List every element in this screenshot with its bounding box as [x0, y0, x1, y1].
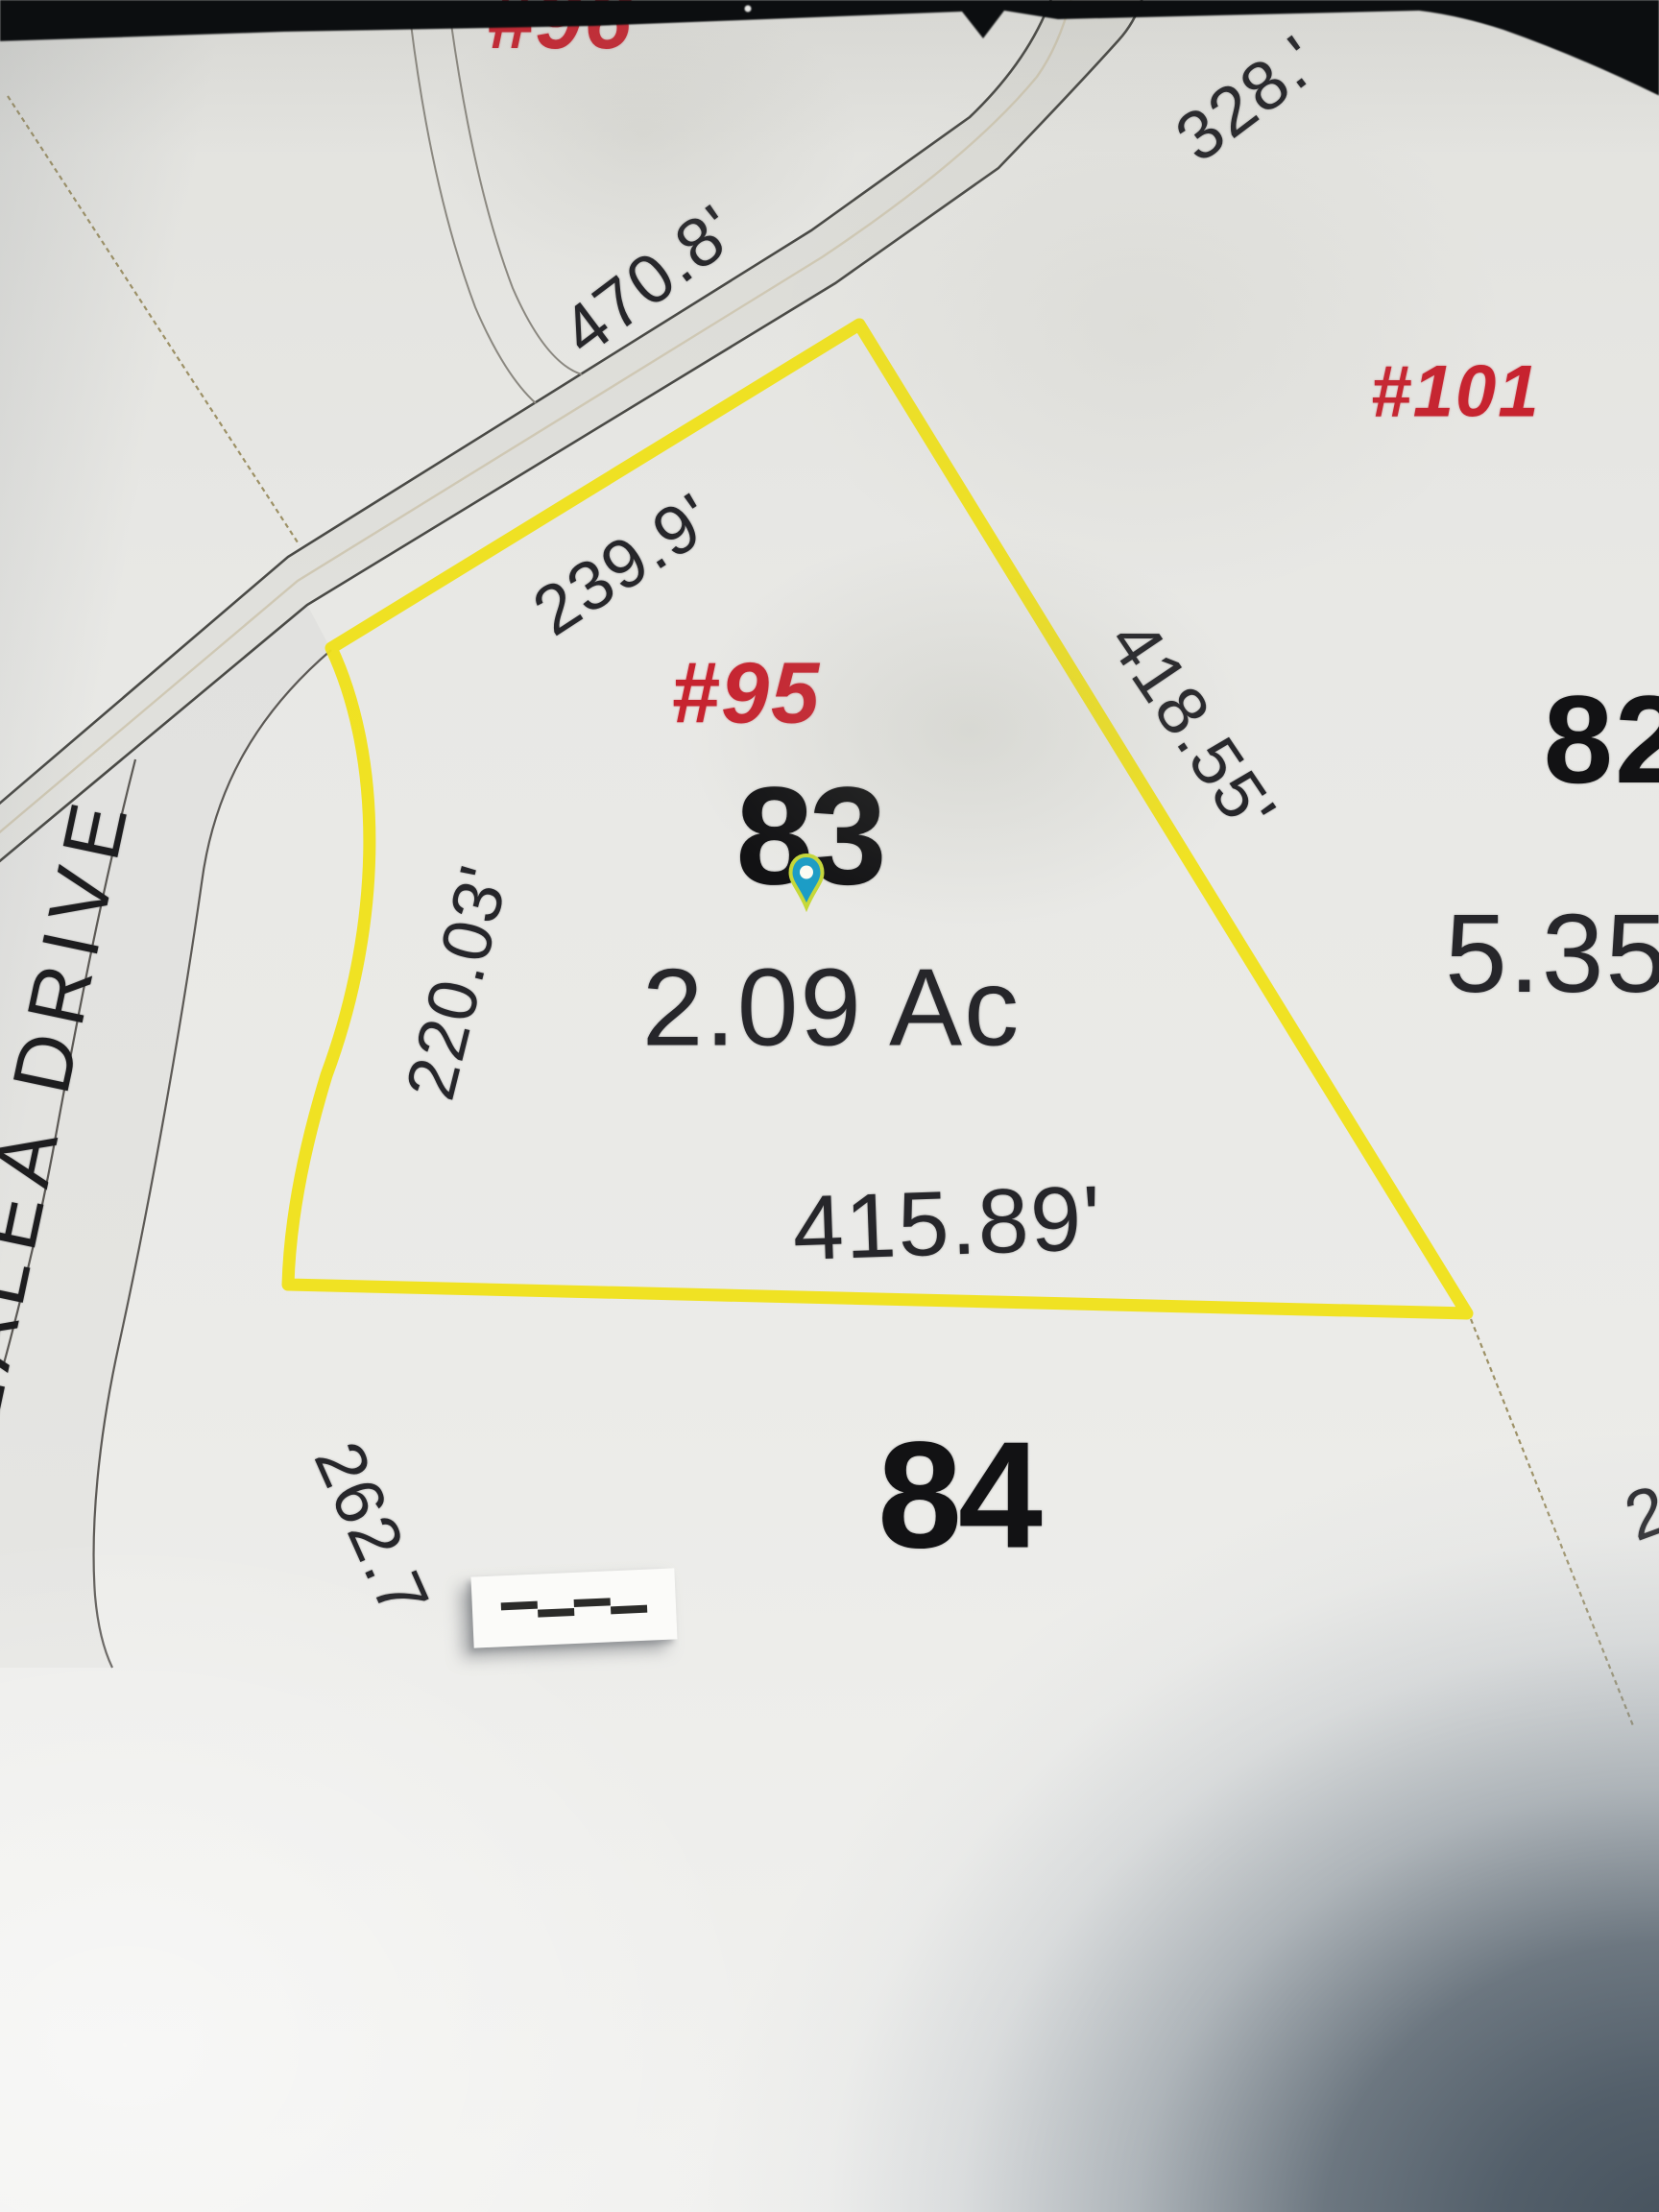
lot-area-209: 2.09 Ac — [642, 946, 1021, 1071]
parcel-line-southeast — [1471, 1319, 1634, 1728]
lot-dimension-south: 415.89' — [791, 1166, 1104, 1282]
scale-bar-segment — [501, 1601, 538, 1611]
upper-street-west-edge — [411, 24, 536, 403]
parcel-line-northwest — [8, 96, 300, 545]
lot-number-82: 82 — [1544, 667, 1659, 811]
plat-linework — [0, 0, 1659, 2212]
site-number-101: #101 — [1370, 350, 1540, 434]
site-number-95: #95 — [671, 645, 821, 744]
scale-bar — [470, 1568, 677, 1647]
scale-bar-segment — [538, 1608, 574, 1618]
lot-area-535: 5.35 — [1445, 889, 1659, 1018]
map-pin-icon[interactable] — [787, 853, 826, 912]
lot-number-84: 84 — [878, 1409, 1039, 1583]
scale-bar-segment — [574, 1598, 611, 1607]
plat-map-photo: 470.8' 328.' #96 #101 239.9' #95 83 2.09… — [0, 0, 1659, 2212]
scale-bar-segment — [611, 1605, 647, 1615]
site-number-96-partial: #96 — [487, 0, 634, 68]
